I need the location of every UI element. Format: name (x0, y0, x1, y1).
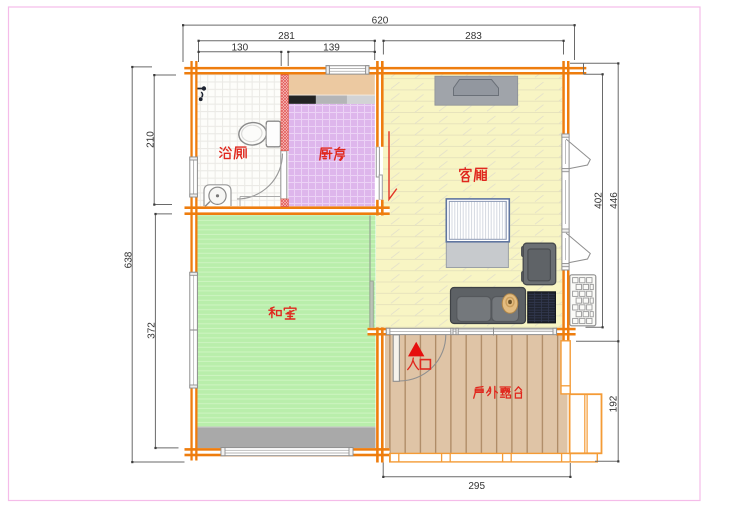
svg-text:139: 139 (323, 42, 340, 53)
svg-text:372: 372 (146, 322, 157, 339)
svg-text:283: 283 (465, 31, 482, 42)
svg-text:402: 402 (594, 192, 605, 209)
svg-text:446: 446 (609, 192, 620, 209)
svg-text:638: 638 (123, 251, 134, 268)
svg-text:620: 620 (372, 16, 389, 27)
svg-text:130: 130 (231, 42, 248, 53)
svg-text:210: 210 (145, 131, 156, 148)
svg-text:281: 281 (278, 31, 295, 42)
svg-text:295: 295 (468, 481, 485, 492)
svg-text:192: 192 (609, 395, 620, 412)
